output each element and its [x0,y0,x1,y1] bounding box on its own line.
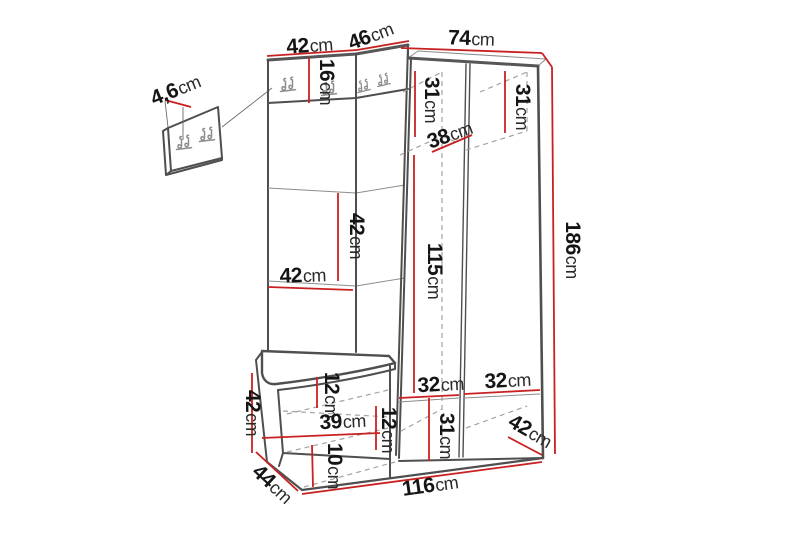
wall-panel-detail [163,88,272,175]
coat-hook-icon [281,77,296,91]
dim-wall-panel-depth: 4,6cm [147,70,204,111]
dim-total-height: 186cm [561,221,584,279]
dim-lower-right-compartment-width: 32cm [484,368,531,393]
dim-lower-compartment-height: 31cm [435,413,458,459]
dim-top-left-width: 42cm [286,32,334,58]
dim-bench-bottom-gap: 10cm [323,443,346,489]
dim-top-right-width: 74cm [448,26,495,51]
dim-wardrobe-depth: 42cm [504,410,556,453]
dim-panel-cushion-height: 42cm [345,213,368,259]
dim-hook-strip-height: 16cm [315,59,338,105]
diagram-canvas: 4,6cm 42cm 46cm 74cm 16cm 31cm 31cm 38cm… [0,0,800,533]
dim-bench-shelf-gap: 12cm [377,407,400,453]
furniture-dimension-diagram: 4,6cm 42cm 46cm 74cm 16cm 31cm 31cm 38cm… [0,0,800,533]
coat-hook-icon [377,73,391,86]
dim-upper-left-compartment: 31cm [420,77,443,123]
coat-hook-icon [357,79,371,92]
dim-bench-interior-width: 39cm [319,409,366,434]
dim-panel-cushion-width: 42cm [279,263,326,288]
detail-leader-line [222,88,272,127]
dim-lower-left-compartment-width: 32cm [417,372,464,397]
dim-upper-right-compartment: 31cm [511,84,534,130]
dim-bench-height: 42cm [241,390,264,436]
dim-wardrobe-interior-height: 115cm [423,243,446,299]
